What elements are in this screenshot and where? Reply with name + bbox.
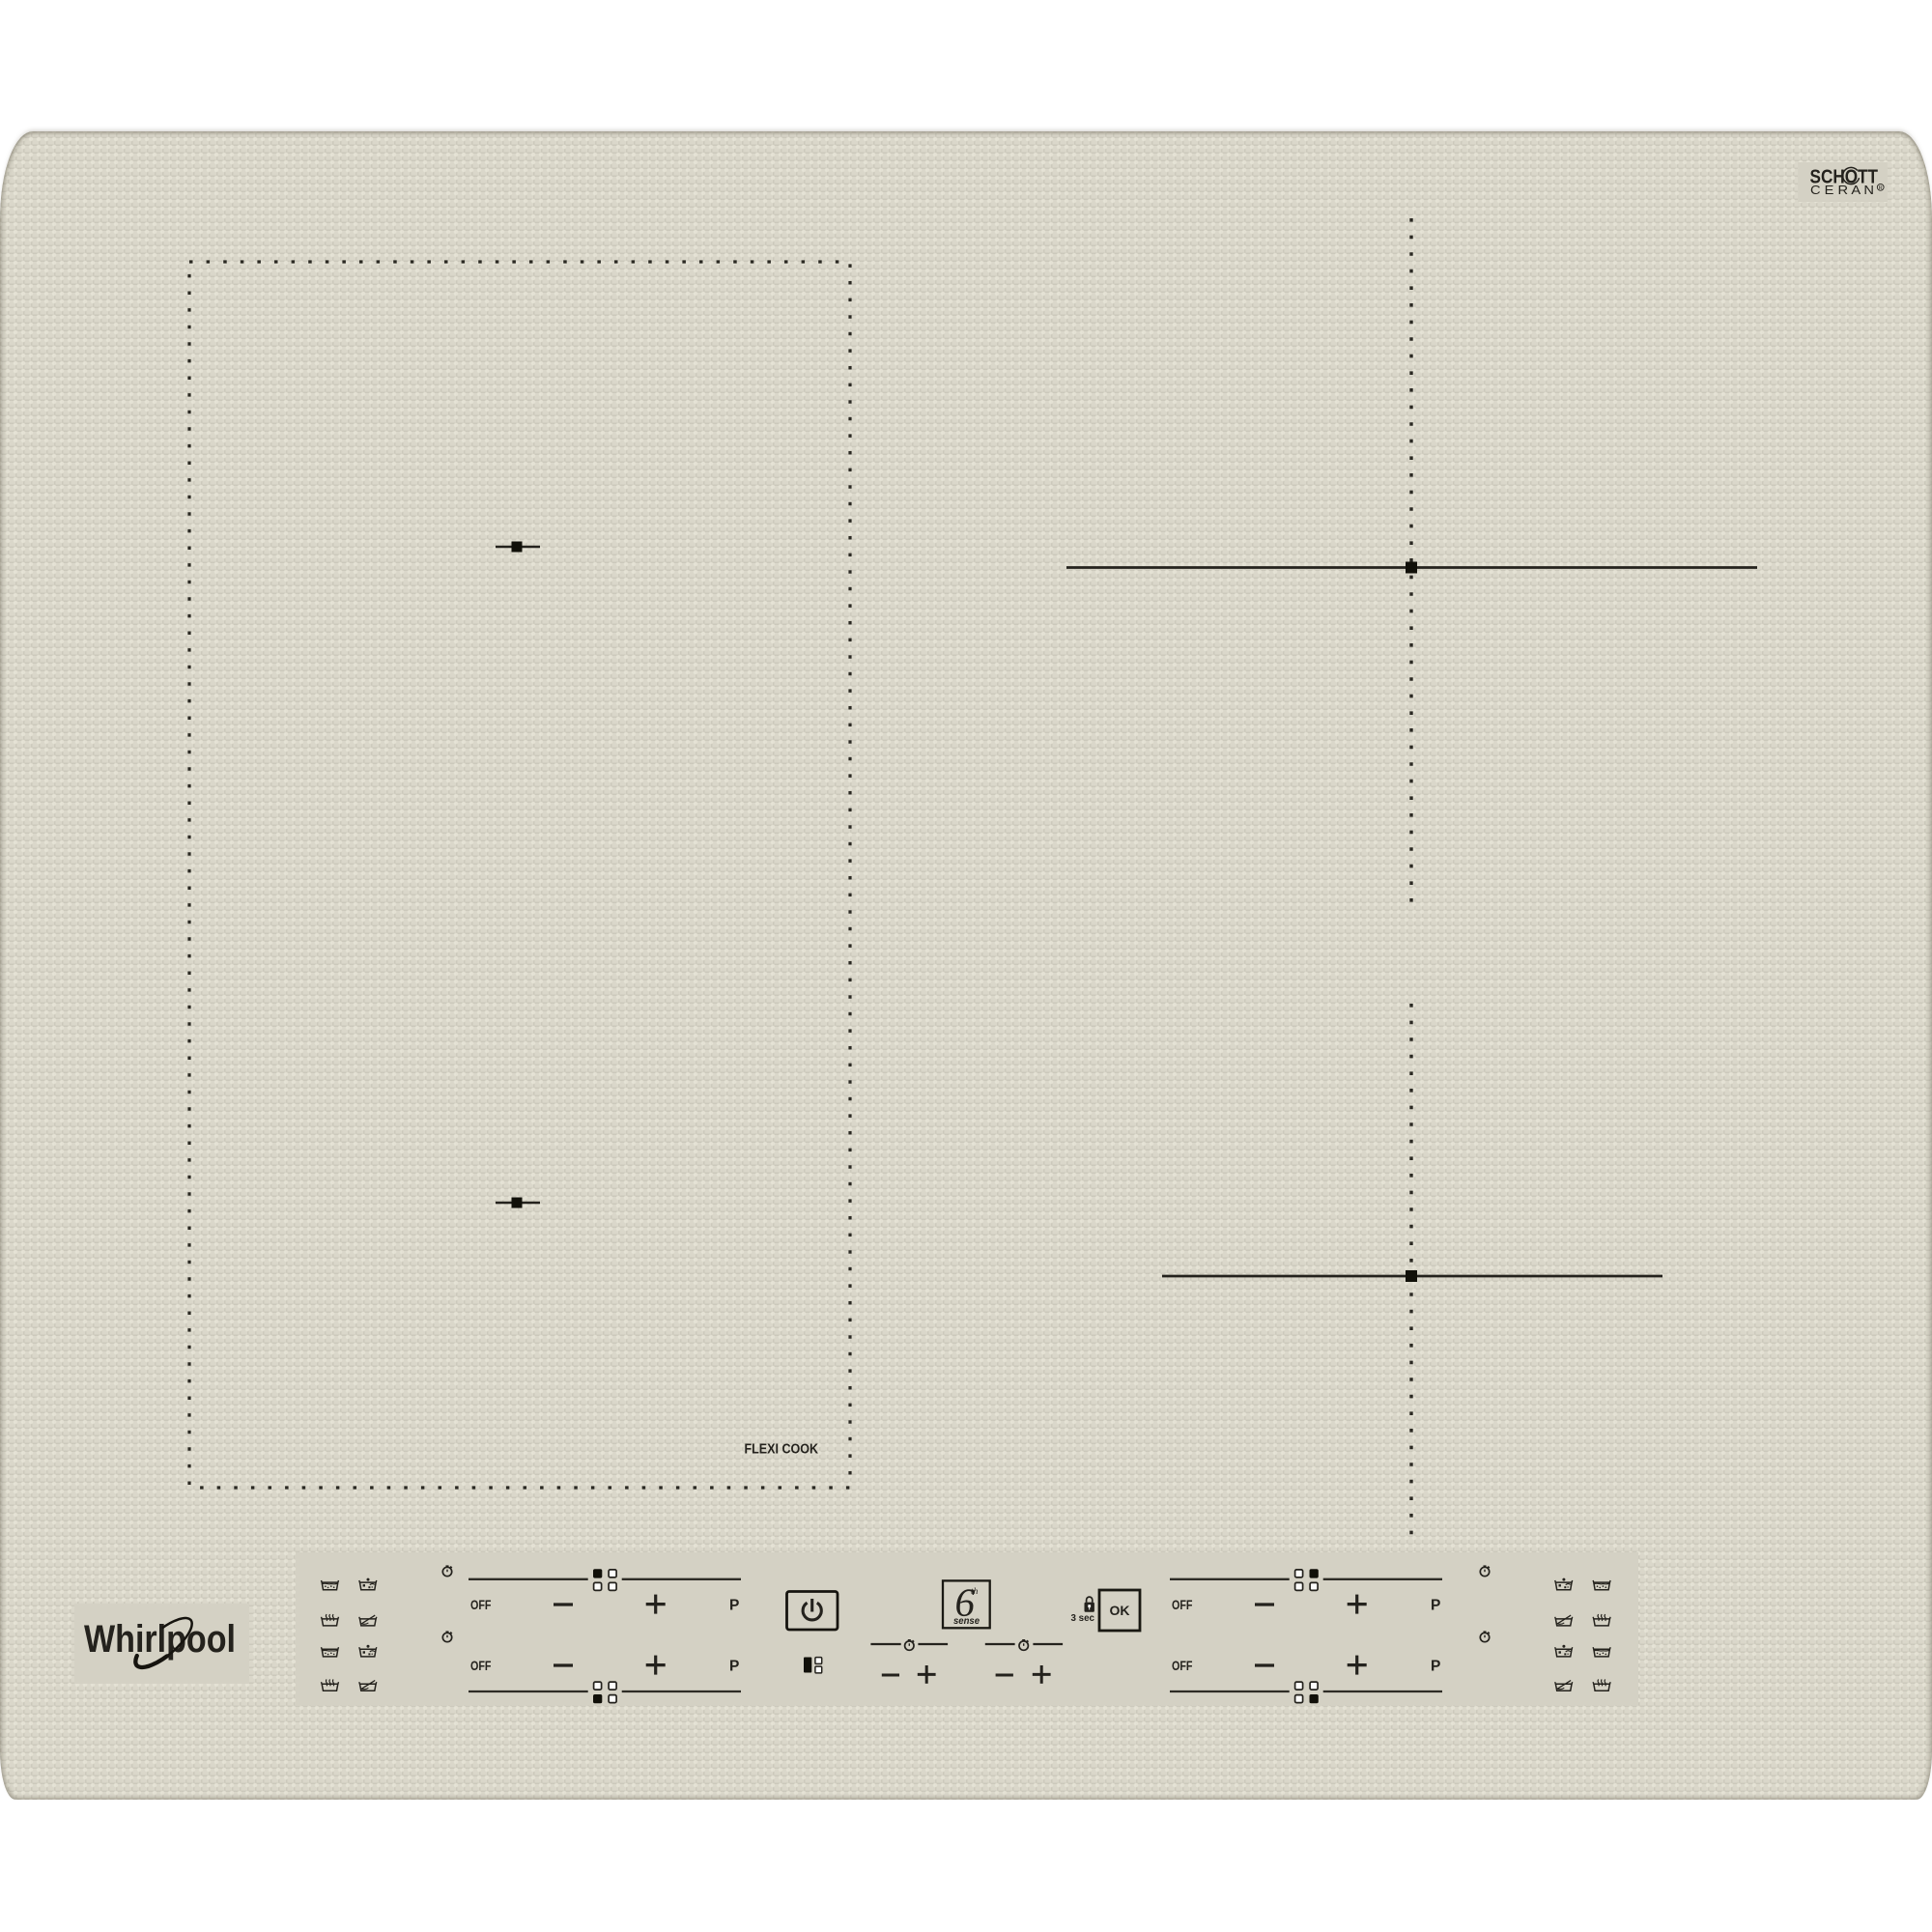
svg-text:Whirlpool: Whirlpool — [84, 1618, 236, 1661]
svg-text:th: th — [971, 1587, 979, 1597]
svg-text:FLEXI COOK: FLEXI COOK — [745, 1442, 819, 1458]
svg-text:sense: sense — [953, 1616, 980, 1627]
svg-text:OFF: OFF — [1172, 1598, 1193, 1613]
svg-text:OFF: OFF — [1172, 1659, 1193, 1674]
svg-text:OFF: OFF — [470, 1598, 492, 1613]
svg-text:P: P — [1431, 1598, 1440, 1614]
svg-text:P: P — [729, 1598, 739, 1614]
svg-text:P: P — [729, 1659, 739, 1675]
svg-text:OK: OK — [1110, 1603, 1130, 1618]
svg-text:P: P — [1431, 1659, 1440, 1675]
svg-text:R: R — [1879, 185, 1883, 191]
svg-text:C E R A N: C E R A N — [1810, 184, 1874, 197]
svg-text:3 sec: 3 sec — [1070, 1613, 1094, 1624]
svg-text:OFF: OFF — [470, 1659, 492, 1674]
